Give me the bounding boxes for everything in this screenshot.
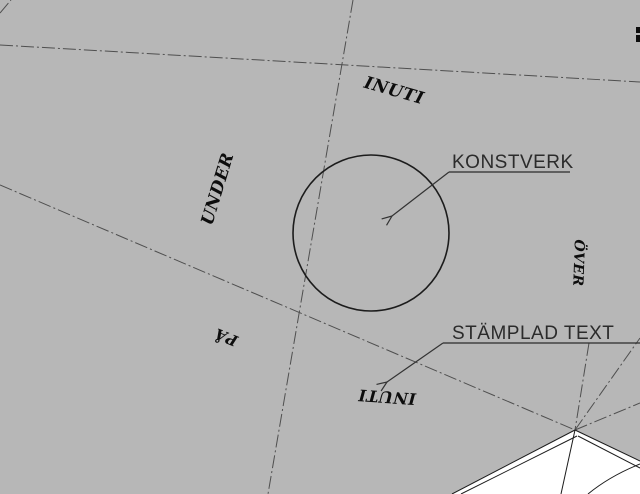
konstverk-leader-arrow xyxy=(392,172,449,216)
konstverk-circle xyxy=(293,155,449,311)
boundary-line-steep xyxy=(268,0,353,494)
boundary-line-vertical-dashed xyxy=(575,343,589,430)
boundary-line-diagonal xyxy=(0,185,575,430)
site-plan-canvas xyxy=(0,0,640,494)
konstverk-label: KONSTVERK xyxy=(452,153,574,172)
stamplad-text-label: STÄMPLAD TEXT xyxy=(452,324,614,343)
cropped-stamp-mark-upper xyxy=(636,27,640,33)
stamp-over: ÖVER xyxy=(569,239,587,287)
drawing-viewport: KONSTVERK STÄMPLAD TEXT INUTI UNDER ÖVER… xyxy=(0,0,640,494)
boundary-line-lower-right-steep xyxy=(575,338,640,430)
boundary-line-corner-stub xyxy=(0,0,11,13)
stamplad-text-leader-arrow xyxy=(387,343,443,382)
boundary-line-top xyxy=(0,45,640,82)
stamp-inuti-bottom: INUTI xyxy=(357,386,416,409)
cropped-stamp-mark-lower xyxy=(636,35,640,42)
